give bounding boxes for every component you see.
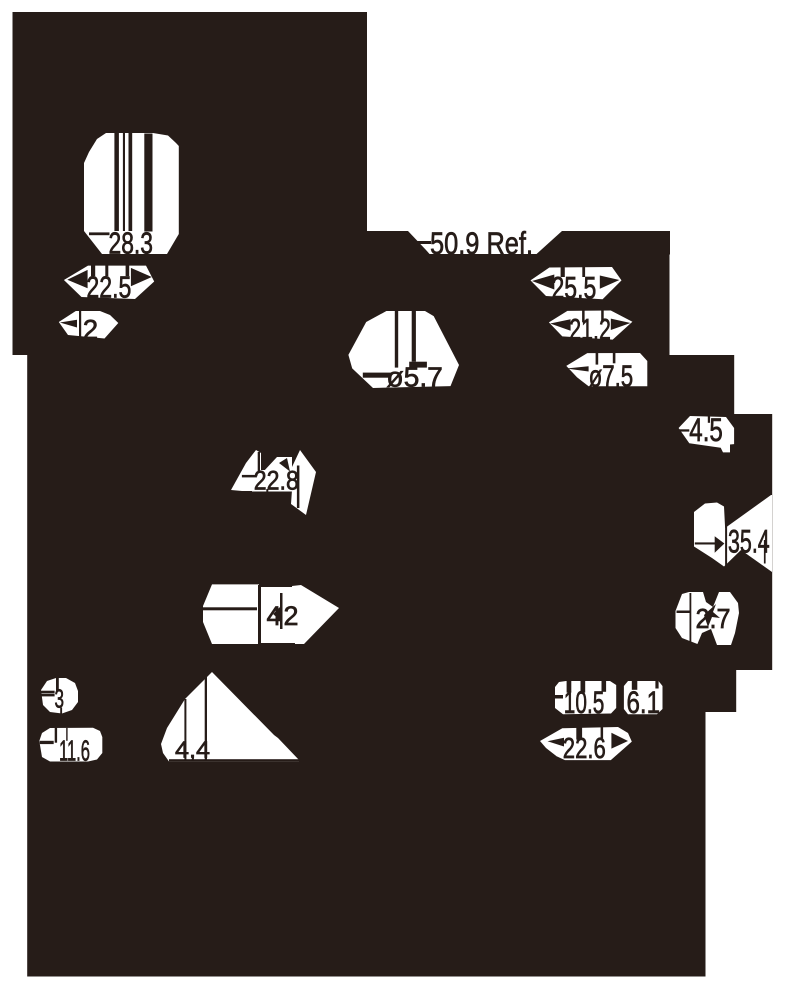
svg-text:22.5: 22.5 [86, 270, 131, 305]
svg-text:28.3: 28.3 [109, 225, 154, 260]
svg-text:21.2: 21.2 [569, 314, 611, 347]
svg-text:22.6: 22.6 [563, 733, 606, 765]
svg-text:2: 2 [284, 601, 299, 631]
svg-text:25.5: 25.5 [552, 271, 597, 306]
svg-text:4: 4 [267, 601, 282, 631]
svg-text:22.8: 22.8 [254, 466, 299, 496]
svg-text:10.5: 10.5 [564, 684, 605, 720]
svg-text:50.9 Ref.: 50.9 Ref. [430, 226, 533, 261]
svg-text:6.1: 6.1 [627, 684, 661, 720]
svg-text:3: 3 [55, 686, 65, 714]
svg-text:35.4: 35.4 [728, 523, 770, 560]
svg-text:ø5.7: ø5.7 [386, 362, 443, 393]
svg-text:ø7.5: ø7.5 [589, 360, 634, 393]
svg-text:4.5: 4.5 [689, 412, 723, 448]
svg-text:11.6: 11.6 [59, 736, 90, 768]
svg-text:2: 2 [83, 314, 98, 345]
svg-text:2.7: 2.7 [696, 603, 731, 634]
svg-text:4,4: 4,4 [175, 736, 210, 762]
